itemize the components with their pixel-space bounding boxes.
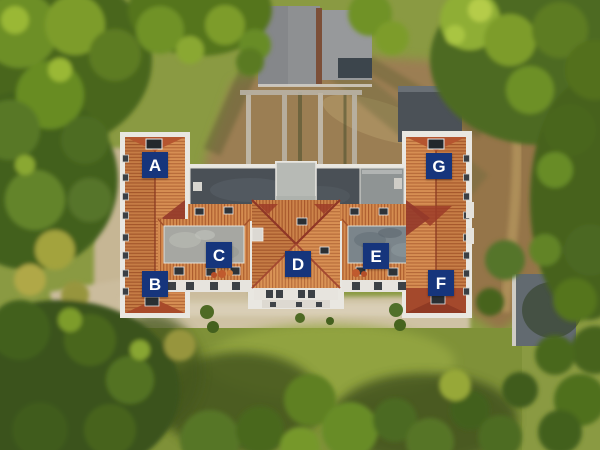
roof-vent: [394, 178, 402, 189]
skylight: [428, 139, 444, 149]
skylight: [297, 218, 307, 225]
aerial-photo: A B C D E F G: [0, 0, 600, 450]
unit-label-e: E: [363, 243, 389, 269]
unit-label-d: D: [285, 251, 311, 277]
roof-access-box: [252, 228, 263, 241]
unit-c-roof: [158, 219, 250, 292]
roof-vent: [193, 182, 202, 191]
unit-label-f: F: [428, 270, 454, 296]
skylight: [320, 247, 329, 254]
unit-label-b: B: [142, 271, 168, 297]
skylight: [145, 297, 159, 306]
balcony: [466, 228, 474, 244]
skylight: [146, 139, 162, 149]
aerial-photo-scene: [0, 0, 600, 450]
balcony: [466, 202, 474, 218]
main-building: [120, 131, 474, 333]
unit-label-g: G: [426, 153, 452, 179]
unit-label-c: C: [206, 242, 232, 268]
skylight: [431, 295, 445, 304]
unit-label-a: A: [142, 152, 168, 178]
